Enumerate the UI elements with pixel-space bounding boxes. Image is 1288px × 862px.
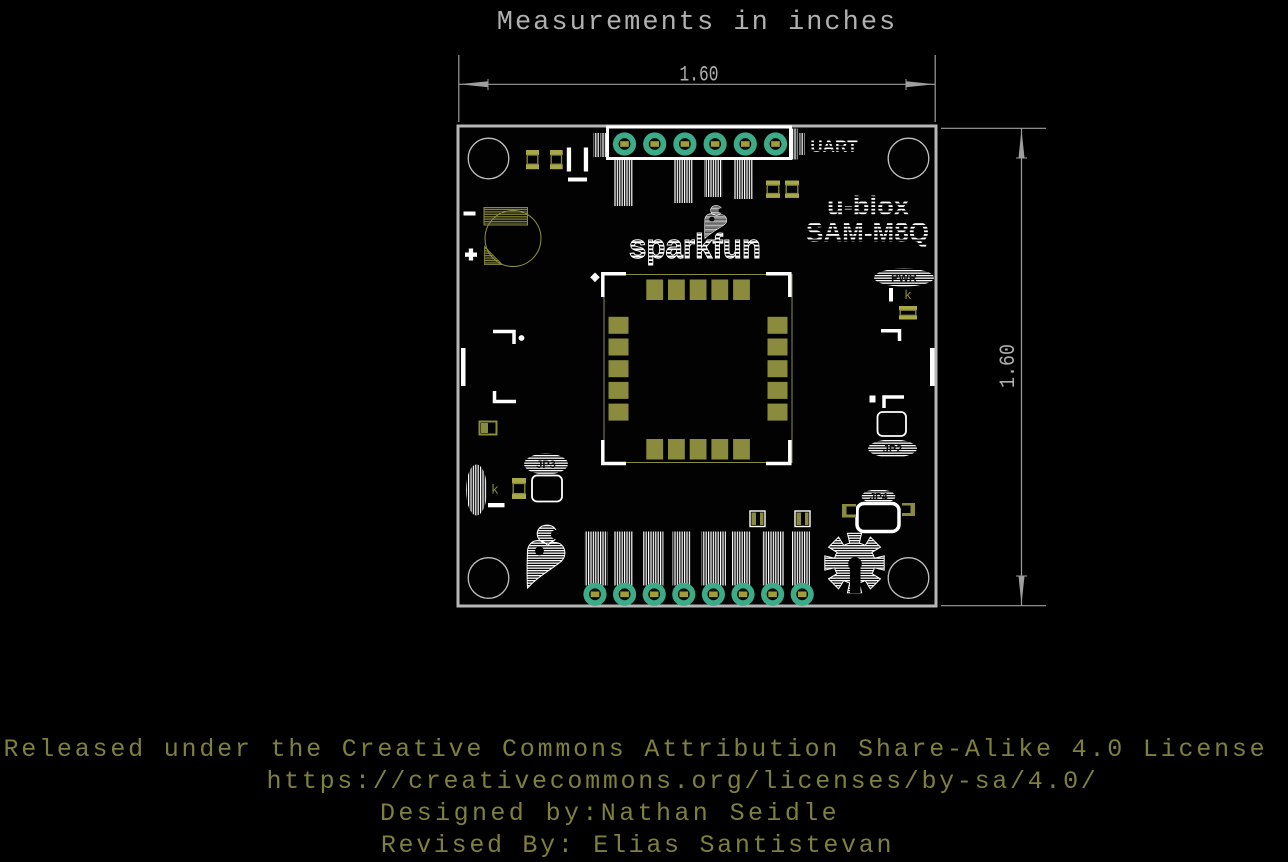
svg-text:Released under the Creative Co: Released under the Creative Commons Attr… xyxy=(4,735,1268,764)
svg-text:k: k xyxy=(904,288,912,303)
svg-text:JP4: JP4 xyxy=(870,492,888,503)
svg-text:PWR: PWR xyxy=(891,273,917,285)
svg-text:Revised By: Elias Santistevan: Revised By: Elias Santistevan xyxy=(381,831,894,860)
svg-text:k: k xyxy=(491,483,499,498)
svg-text:SAM-M8Q: SAM-M8Q xyxy=(806,217,929,248)
svg-text:sparkfun: sparkfun xyxy=(629,228,761,266)
svg-text:1.60: 1.60 xyxy=(996,344,1021,388)
svg-text:Measurements in inches: Measurements in inches xyxy=(497,8,897,38)
svg-text:UART: UART xyxy=(810,137,858,156)
svg-text:https://creativecommons.org/li: https://creativecommons.org/licenses/by-… xyxy=(266,767,1098,796)
svg-text:Designed by:Nathan Seidle: Designed by:Nathan Seidle xyxy=(380,799,840,828)
svg-text:1.60: 1.60 xyxy=(680,63,719,88)
svg-text:JP3: JP3 xyxy=(536,459,556,471)
svg-text:JP2: JP2 xyxy=(883,444,903,456)
